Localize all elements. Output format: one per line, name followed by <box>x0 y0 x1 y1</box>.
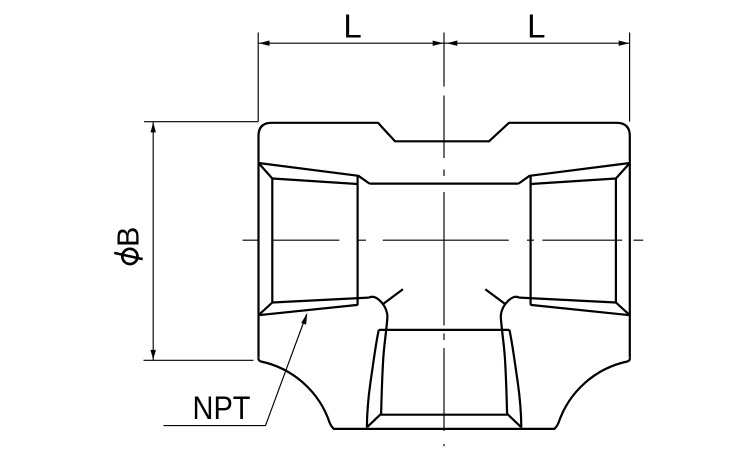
svg-text:L: L <box>527 8 545 45</box>
svg-text:L: L <box>343 8 361 45</box>
svg-text:B: B <box>112 227 146 247</box>
svg-text:NPT: NPT <box>193 389 251 426</box>
